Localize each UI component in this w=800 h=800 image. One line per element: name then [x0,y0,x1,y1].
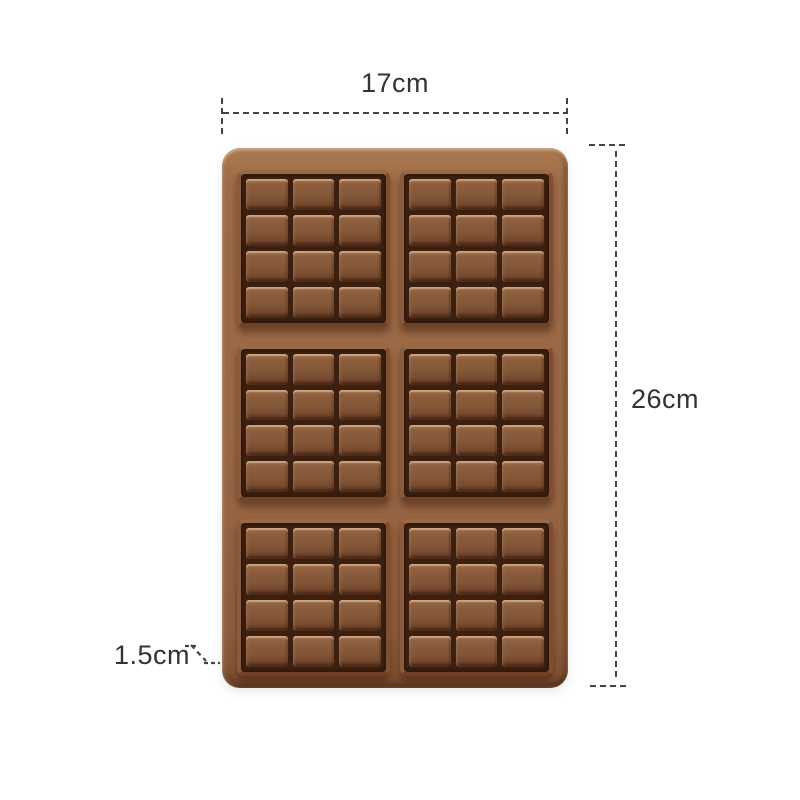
product-image-canvas: 17cm 26cm 1.5cm [0,0,800,800]
chocolate-cell [339,179,381,210]
chocolate-cell [502,528,544,559]
chocolate-cell [246,390,288,421]
chocolate-cell [293,461,335,492]
chocolate-cell [246,600,288,631]
chocolate-cell [293,251,335,282]
chocolate-cell [293,425,335,456]
mold-bar [237,345,390,502]
chocolate-cell [246,425,288,456]
chocolate-cell [293,354,335,385]
chocolate-cell [409,528,451,559]
chocolate-cell [456,287,498,318]
chocolate-cell [456,564,498,595]
chocolate-cell [456,528,498,559]
depth-leader-icon [183,642,221,668]
chocolate-cell [409,354,451,385]
chocolate-cell [409,390,451,421]
chocolate-cell [246,251,288,282]
chocolate-cell [246,461,288,492]
chocolate-cell [456,636,498,667]
chocolate-cell [456,600,498,631]
chocolate-cell [246,528,288,559]
chocolate-cell [409,215,451,246]
chocolate-cell [502,600,544,631]
chocolate-cell [409,461,451,492]
chocolate-cell [502,636,544,667]
height-dimension-tick-top [589,144,628,146]
chocolate-cell [246,179,288,210]
mold-bar [237,170,390,327]
height-dimension-label: 26cm [631,384,699,415]
chocolate-cell [409,600,451,631]
mold-tray [222,148,568,688]
chocolate-cell [246,215,288,246]
chocolate-cell [409,425,451,456]
chocolate-cell [409,564,451,595]
chocolate-cell [456,179,498,210]
mold-bar [400,519,553,676]
chocolate-cell [293,636,335,667]
chocolate-cell [339,287,381,318]
chocolate-cell [246,564,288,595]
chocolate-cell [409,636,451,667]
chocolate-cell [456,461,498,492]
mold-bar [400,170,553,327]
chocolate-cell [502,287,544,318]
mold-bar [400,345,553,502]
chocolate-cell [293,179,335,210]
chocolate-cell [293,390,335,421]
chocolate-cell [246,354,288,385]
chocolate-cell [502,215,544,246]
chocolate-cell [339,528,381,559]
chocolate-cell [456,354,498,385]
chocolate-cell [293,600,335,631]
chocolate-cell [456,251,498,282]
chocolate-cell [502,425,544,456]
chocolate-cell [502,251,544,282]
chocolate-cell [456,215,498,246]
chocolate-cell [339,390,381,421]
chocolate-cell [339,215,381,246]
height-dimension-line [615,151,617,678]
chocolate-cell [502,390,544,421]
chocolate-cell [293,215,335,246]
chocolate-cell [409,287,451,318]
width-dimension-tick-right [566,98,568,135]
chocolate-cell [293,287,335,318]
chocolate-cell [339,251,381,282]
chocolate-cell [339,354,381,385]
chocolate-cell [502,564,544,595]
chocolate-cell [339,600,381,631]
chocolate-cell [456,425,498,456]
height-dimension-tick-bottom [590,685,629,687]
chocolate-cell [502,179,544,210]
chocolate-cell [409,179,451,210]
width-dimension-label: 17cm [222,68,568,99]
mold-bar [237,519,390,676]
chocolate-cell [246,636,288,667]
chocolate-cell [502,354,544,385]
chocolate-cell [339,461,381,492]
chocolate-cell [293,528,335,559]
width-dimension-line [223,112,567,114]
chocolate-cell [246,287,288,318]
chocolate-cell [339,636,381,667]
width-dimension-tick-left [221,98,223,135]
chocolate-cell [456,390,498,421]
chocolate-cell [293,564,335,595]
chocolate-cell [409,251,451,282]
chocolate-cell [339,564,381,595]
depth-dimension-label: 1.5cm [114,640,190,671]
chocolate-cell [339,425,381,456]
chocolate-cell [502,461,544,492]
